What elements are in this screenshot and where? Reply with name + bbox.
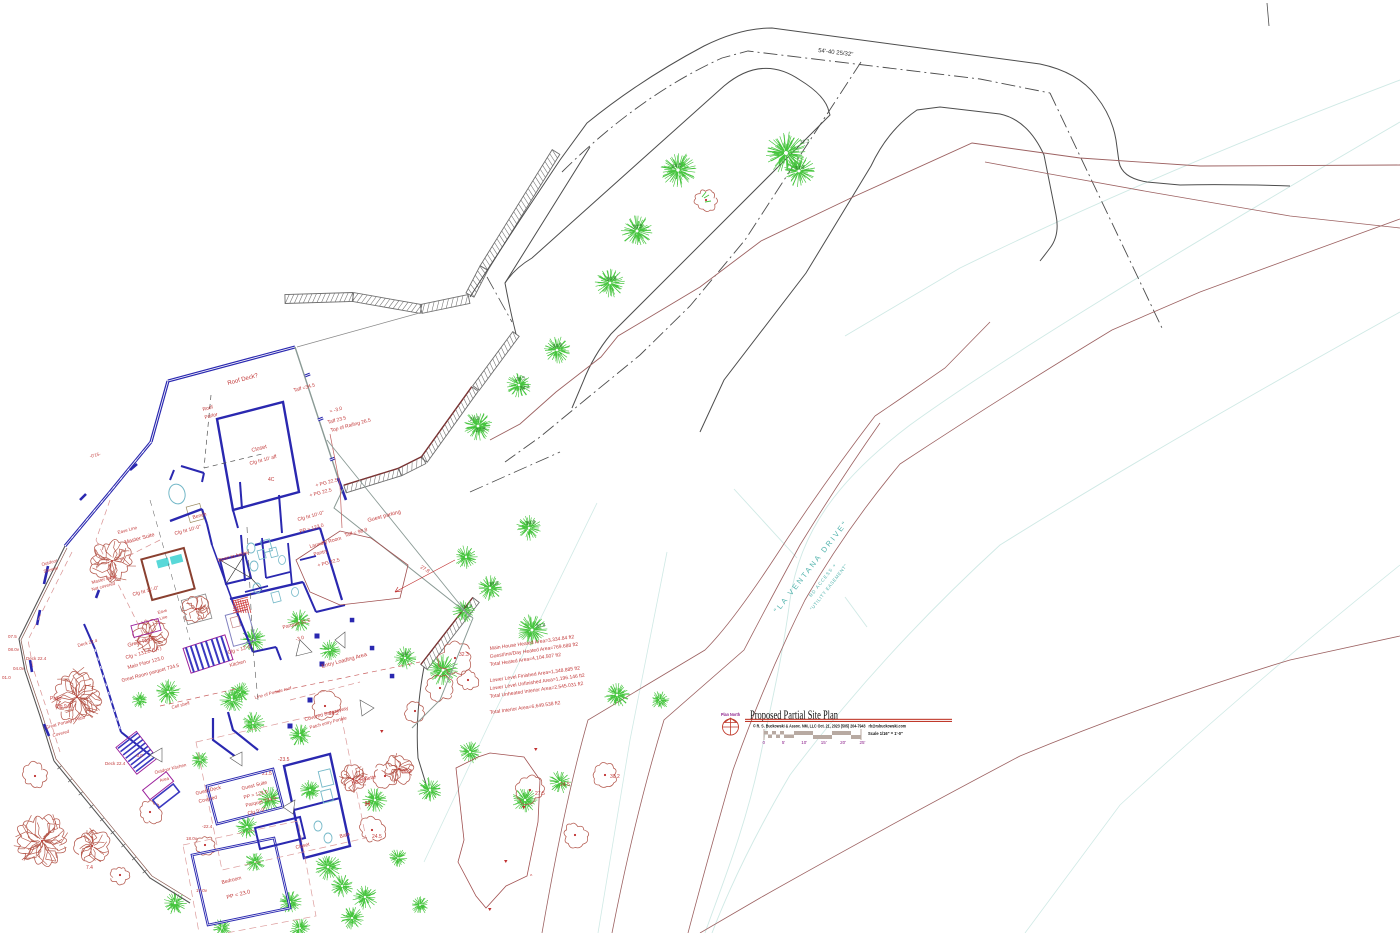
svg-text:08.0v: 08.0v [8, 647, 20, 652]
svg-text:7.4: 7.4 [86, 865, 93, 871]
svg-text:Deck 22.4: Deck 22.4 [26, 656, 47, 661]
svg-text:18.0v: 18.0v [186, 836, 198, 841]
svg-text:27.5: 27.5 [535, 791, 545, 797]
svg-text:10': 10' [801, 740, 807, 745]
svg-text:Patio: Patio [50, 696, 62, 702]
svg-text:-22.4: -22.4 [202, 824, 213, 829]
svg-text:5': 5' [782, 740, 786, 745]
svg-text:4C: 4C [268, 477, 275, 483]
svg-text:17.0v: 17.0v [196, 888, 208, 893]
svg-text:Clg 9.0: Clg 9.0 [55, 704, 71, 710]
svg-text:15': 15' [821, 740, 827, 745]
svg-text:30.2: 30.2 [402, 769, 412, 775]
svg-text:Scale 1/16" = 1'-0": Scale 1/16" = 1'-0" [868, 731, 903, 736]
svg-text:01.0: 01.0 [2, 675, 11, 680]
svg-text:30.2: 30.2 [610, 774, 620, 780]
svg-text:24.5: 24.5 [372, 834, 382, 840]
svg-text:07.5: 07.5 [8, 634, 17, 639]
svg-text:-23.5: -23.5 [278, 757, 290, 763]
svg-text:32.3: 32.3 [459, 652, 469, 658]
svg-text:20': 20' [840, 740, 846, 745]
svg-text:-3.0: -3.0 [135, 753, 143, 758]
svg-text:Proposed Partial Site Plan: Proposed Partial Site Plan [750, 708, 839, 722]
svg-text:04.0v: 04.0v [13, 666, 25, 671]
svg-text:© R. S. Buckowski & Assoc. NM,: © R. S. Buckowski & Assoc. NM, LLC Oct. … [753, 723, 906, 729]
svg-text:25': 25' [860, 740, 866, 745]
svg-text:Plan North: Plan North [721, 712, 740, 717]
svg-text:Deck 22.4: Deck 22.4 [105, 761, 126, 766]
svg-text:24.5: 24.5 [560, 782, 570, 788]
svg-text:H: H [365, 801, 370, 808]
